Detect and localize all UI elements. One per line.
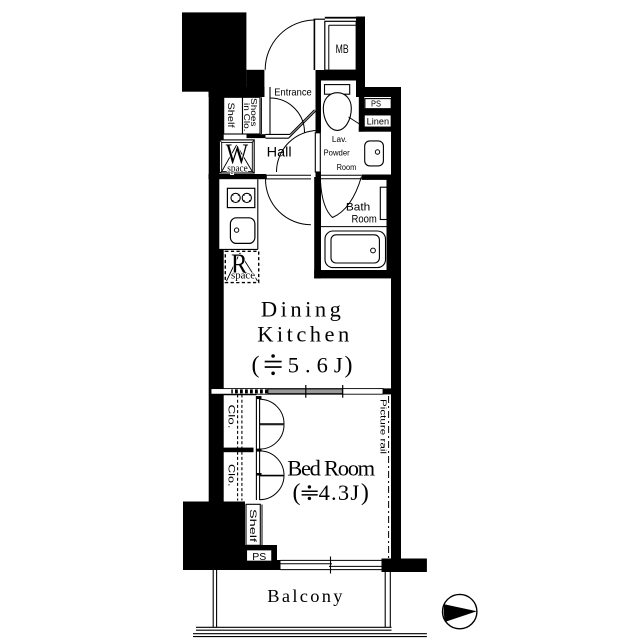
svg-text:Bed Room: Bed Room <box>287 455 375 480</box>
svg-text:Clo.: Clo. <box>225 464 236 487</box>
svg-text:Room: Room <box>337 163 357 172</box>
svg-text:Powder: Powder <box>324 148 350 157</box>
svg-text:Linen: Linen <box>367 116 389 126</box>
svg-text:Bath: Bath <box>346 201 370 213</box>
svg-text:(: ( <box>293 480 301 506</box>
svg-text:space: space <box>231 271 256 282</box>
svg-text:in Clo.: in Clo. <box>242 103 252 132</box>
svg-text:4.3J: 4.3J <box>319 480 360 505</box>
svg-text:Shelf: Shelf <box>226 103 236 129</box>
svg-text:PS: PS <box>371 99 381 109</box>
svg-text:): ) <box>361 480 369 506</box>
svg-text:Clo.: Clo. <box>225 405 236 429</box>
svg-text:Lav.: Lav. <box>332 135 347 144</box>
svg-text:(: ( <box>252 353 260 379</box>
svg-text:Dining: Dining <box>261 296 341 321</box>
svg-text:): ) <box>345 353 353 379</box>
svg-text:MB: MB <box>336 42 349 56</box>
svg-text:Room: Room <box>352 214 377 226</box>
svg-text:Shelf: Shelf <box>248 509 258 543</box>
svg-text:PS: PS <box>252 552 266 563</box>
svg-text:Picture rail: Picture rail <box>378 399 387 454</box>
svg-text:space: space <box>227 163 248 174</box>
svg-text:Entrance: Entrance <box>274 87 312 99</box>
